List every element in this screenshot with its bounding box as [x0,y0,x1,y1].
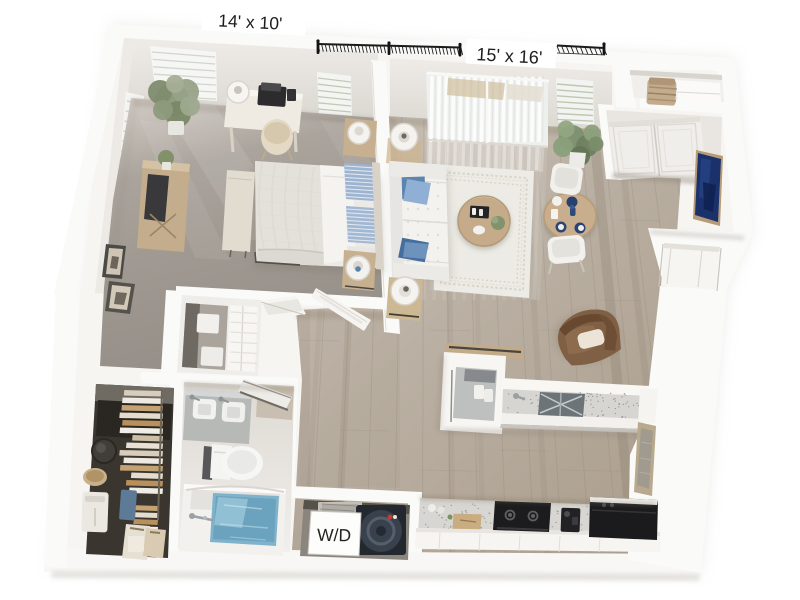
svg-text:14' x 10': 14' x 10' [218,10,283,33]
svg-text:15' x 16': 15' x 16' [476,44,543,68]
svg-text:W/D: W/D [317,525,351,546]
